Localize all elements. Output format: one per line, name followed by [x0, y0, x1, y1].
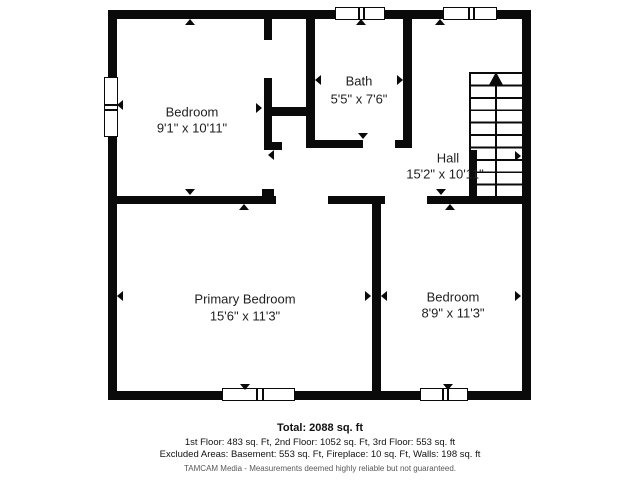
dimension-arrow-icon	[268, 150, 274, 160]
window-symbol	[443, 7, 497, 20]
dimension-arrow-icon	[315, 75, 321, 85]
dimension-arrow-icon	[365, 291, 371, 301]
dimension-arrow-icon	[256, 103, 262, 113]
room-dims-hall: 15'2" x 10'11"	[406, 167, 484, 182]
dimension-arrow-icon	[185, 189, 195, 195]
dimension-arrow-icon	[443, 384, 453, 390]
stairs-up-arrow-icon	[489, 72, 503, 85]
dimension-arrow-icon	[358, 133, 368, 139]
dimension-arrow-icon	[397, 75, 403, 85]
hall-wall-bottom	[427, 196, 531, 204]
room-label-primary-bedroom: Primary Bedroom	[194, 292, 295, 307]
room-dims-bedroom-top: 9'1" x 10'11"	[157, 121, 227, 136]
dimension-arrow-icon	[435, 19, 445, 25]
window-symbol	[222, 388, 295, 401]
bath-wall-bottom	[395, 140, 412, 148]
outer-wall-left	[108, 10, 117, 400]
window-symbol	[104, 77, 118, 137]
dimension-arrow-icon	[117, 291, 123, 301]
dimension-arrow-icon	[381, 291, 387, 301]
interior-wall	[264, 19, 272, 40]
room-label-bedroom-right: Bedroom	[427, 290, 480, 305]
room-dims-bedroom-right: 8'9" x 11'3"	[421, 306, 484, 321]
dimension-arrow-icon	[515, 151, 521, 161]
room-label-hall: Hall	[437, 151, 459, 166]
footer-excluded-areas: Excluded Areas: Basement: 553 sq. Ft, Fi…	[0, 449, 640, 460]
dimension-arrow-icon	[240, 384, 250, 390]
interior-wall	[262, 189, 274, 196]
staircase-center-line	[495, 80, 497, 196]
hall-wall-bottom	[108, 196, 276, 204]
floor-plan: Bedroom 9'1" x 10'11" Bath 5'5" x 7'6" H…	[0, 0, 640, 480]
bath-wall-left	[306, 19, 315, 148]
bedroom-divider-wall	[372, 196, 381, 391]
footer-floor-areas: 1st Floor: 483 sq. Ft, 2nd Floor: 1052 s…	[0, 437, 640, 448]
dimension-arrow-icon	[239, 204, 249, 210]
bath-wall-right	[403, 19, 412, 148]
dimension-arrow-icon	[185, 19, 195, 25]
interior-wall	[272, 142, 282, 150]
dimension-arrow-icon	[356, 19, 366, 25]
room-dims-bath: 5'5" x 7'6"	[331, 92, 388, 107]
footer-total: Total: 2088 sq. ft	[0, 422, 640, 434]
room-dims-primary-bedroom: 15'6" x 11'3"	[210, 309, 280, 324]
dimension-arrow-icon	[436, 189, 446, 195]
footer-disclaimer: TAMCAM Media - Measurements deemed highl…	[0, 464, 640, 473]
room-label-bedroom-top: Bedroom	[166, 105, 219, 120]
bath-wall-bottom	[306, 140, 363, 148]
dimension-arrow-icon	[515, 291, 521, 301]
dimension-arrow-icon	[117, 100, 123, 110]
outer-wall-right	[522, 10, 531, 400]
room-label-bath: Bath	[346, 74, 373, 89]
dimension-arrow-icon	[445, 204, 455, 210]
